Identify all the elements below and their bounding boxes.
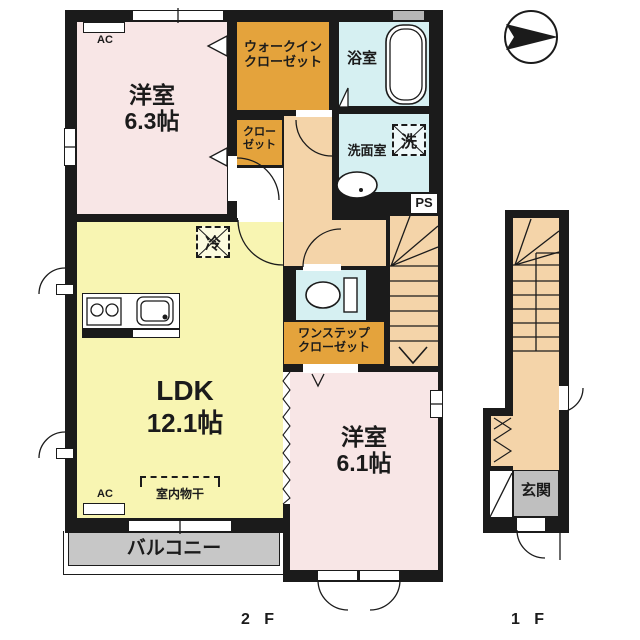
window-top <box>132 10 224 21</box>
label-bathroom: 浴室 <box>336 50 388 67</box>
label-walk-in-closet: ウォークイン クローゼット <box>237 40 329 70</box>
window-leaf-right-6-1 <box>359 570 400 581</box>
kitchen-lower-cabinet <box>82 329 132 338</box>
osc-line1: ワンステップ <box>284 327 384 341</box>
pipe-space-label: PS <box>415 196 432 211</box>
ldk-area: 12.1帖 <box>85 408 285 439</box>
wic-line1: ウォークイン <box>237 40 329 55</box>
compass-icon <box>505 11 558 63</box>
label-ac-upper: AC <box>83 34 127 47</box>
label-entrance: 玄関 <box>513 482 559 499</box>
shoe-cabinet-1f <box>489 470 513 518</box>
window-balcony <box>128 520 232 532</box>
bathroom-text: 浴室 <box>347 50 377 67</box>
label-indoor-drying: 室内物干 <box>138 488 222 502</box>
door-gap-washroom <box>296 110 332 117</box>
label-western-6-3: 洋室 6.3帖 <box>77 82 227 135</box>
door-gap-toilet <box>303 264 341 271</box>
ac-unit-upper <box>83 22 125 33</box>
floor-1f-text: 1 F <box>511 611 549 628</box>
door-gap-1f-hall <box>559 386 568 410</box>
label-one-step-closet: ワンステップ クローゼット <box>284 327 384 355</box>
balcony-text: バルコニー <box>127 538 222 559</box>
window-right-6-1 <box>430 390 443 418</box>
room-toilet <box>296 270 366 320</box>
hall-upper <box>284 116 332 220</box>
indoor-drying-bracket <box>140 476 220 487</box>
western-6-3-area: 6.3帖 <box>77 108 227 134</box>
label-ldk: LDK 12.1帖 <box>85 374 285 439</box>
door-gap-1f-entrance <box>517 518 545 531</box>
label-western-6-1: 洋室 6.1帖 <box>290 424 438 477</box>
western-6-1-name: 洋室 <box>290 424 438 450</box>
osc-line2: クローゼット <box>284 341 384 355</box>
entrance-text: 玄関 <box>521 482 551 499</box>
kitchen-lower-counter <box>132 329 180 338</box>
door-gap-ldk <box>238 215 283 222</box>
label-floor-2f: 2 F <box>228 611 292 629</box>
refrigerator-box: 冷 <box>196 226 230 258</box>
western-6-3-name: 洋室 <box>77 82 227 108</box>
window-leaf-kitchen-1 <box>56 284 74 295</box>
closet-line2: ゼット <box>237 139 282 152</box>
door-gap-6-3 <box>228 156 237 201</box>
ac-lower-text: AC <box>97 488 113 500</box>
window-bath-top <box>392 10 425 21</box>
window-leaf-kitchen-2 <box>56 448 74 459</box>
label-washroom: 洗面室 <box>334 144 400 159</box>
stairs-2f-floor <box>390 216 438 366</box>
floor-2f-text: 2 F <box>241 611 279 628</box>
western-6-1-area: 6.1帖 <box>290 450 438 476</box>
ac-upper-text: AC <box>97 34 113 46</box>
door-swing-zone <box>237 168 283 218</box>
closet-line1: クロー <box>237 126 282 139</box>
label-closet: クロー ゼット <box>237 126 282 151</box>
shoe-closet-1f <box>491 416 513 466</box>
refrigerator-label: 冷 <box>205 230 221 254</box>
wic-line2: クローゼット <box>237 55 329 70</box>
window-leaf-left-6-1 <box>317 570 358 581</box>
floorplan-page: PS 冷 洗 洋室 6.3帖 ウォークイン クローゼット クロー ゼット 浴室 … <box>0 0 640 640</box>
hall-lower <box>284 220 386 266</box>
washroom-text: 洗面室 <box>347 143 386 158</box>
pipe-space-box: PS <box>410 193 438 214</box>
label-balcony: バルコニー <box>68 538 280 560</box>
ldk-name: LDK <box>85 374 285 408</box>
stairs-hall-1f-floor <box>513 218 559 472</box>
ac-unit-lower <box>83 503 125 515</box>
label-ac-lower: AC <box>83 488 127 501</box>
room-ldk <box>77 222 283 518</box>
indoor-drying-text: 室内物干 <box>156 487 204 501</box>
sliding-door-6-1 <box>303 364 358 373</box>
washing-machine-label: 洗 <box>401 128 417 152</box>
window-left-6-3 <box>64 128 76 166</box>
label-floor-1f: 1 F <box>498 611 562 629</box>
kitchen-counter <box>82 293 180 329</box>
